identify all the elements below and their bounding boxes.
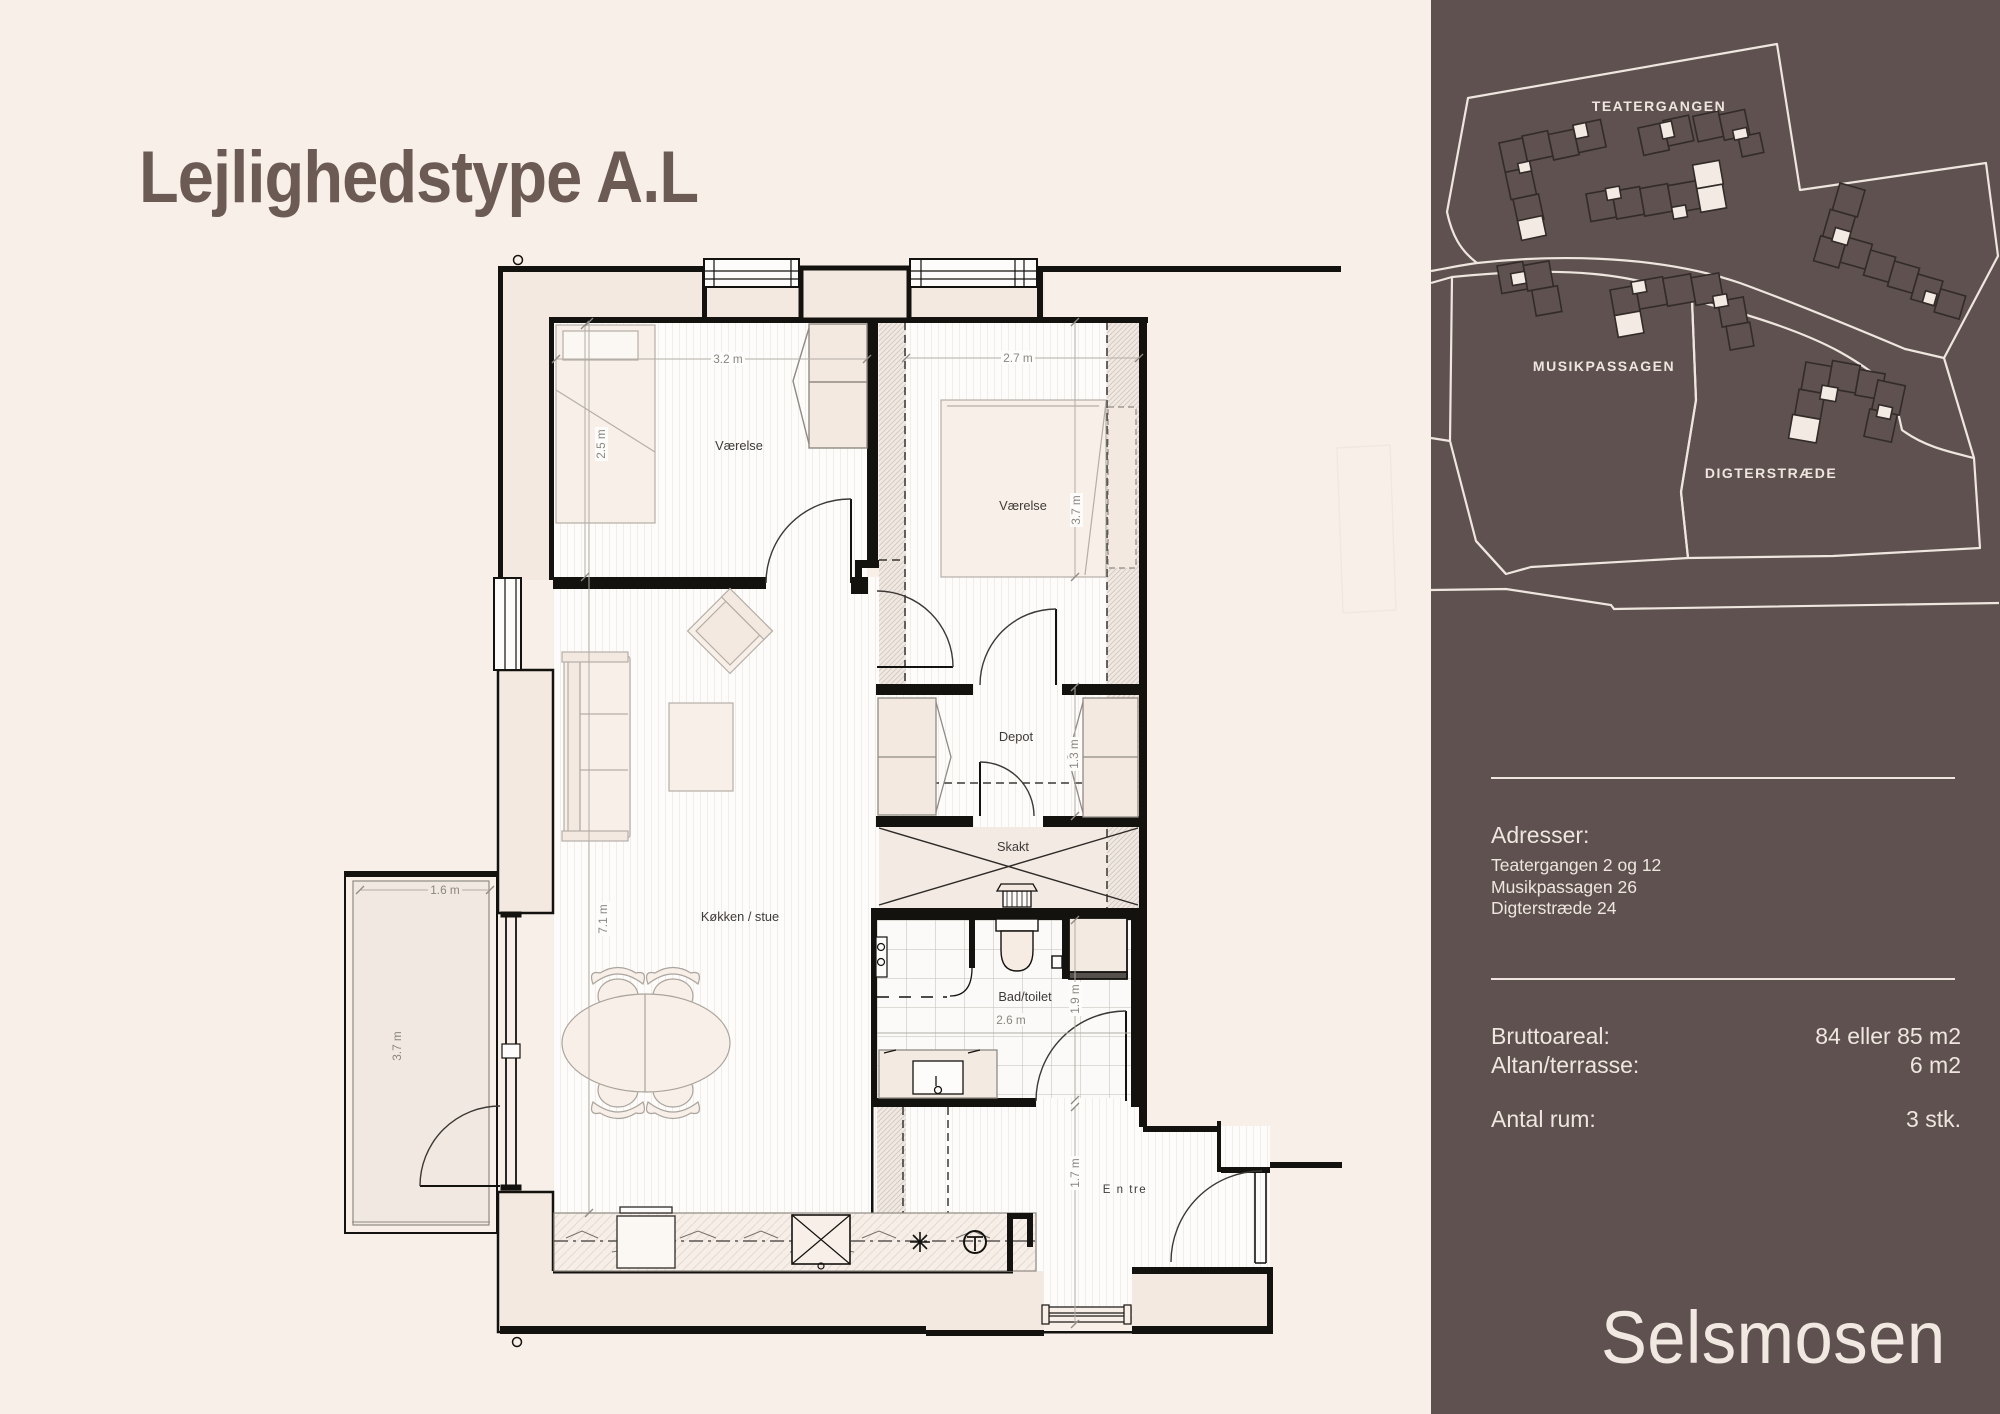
svg-text:1.7 m: 1.7 m <box>1068 1158 1082 1188</box>
svg-text:7.1 m: 7.1 m <box>596 904 610 934</box>
svg-text:3.7 m: 3.7 m <box>390 1031 404 1061</box>
svg-text:3.7 m: 3.7 m <box>1069 495 1083 525</box>
svg-text:3.2 m: 3.2 m <box>713 352 743 366</box>
svg-text:Skakt: Skakt <box>997 839 1029 854</box>
svg-text:Depot: Depot <box>999 729 1034 744</box>
svg-text:DIGTERSTRÆDE: DIGTERSTRÆDE <box>1705 465 1837 481</box>
svg-text:Bad/toilet: Bad/toilet <box>998 989 1052 1004</box>
svg-text:MUSIKPASSAGEN: MUSIKPASSAGEN <box>1533 358 1675 374</box>
svg-text:2.6 m: 2.6 m <box>996 1013 1026 1027</box>
svg-text:1.3 m: 1.3 m <box>1067 739 1081 769</box>
svg-text:Værelse: Værelse <box>999 498 1047 513</box>
svg-text:TEATERGANGEN: TEATERGANGEN <box>1592 98 1726 114</box>
svg-text:Værelse: Værelse <box>715 438 763 453</box>
svg-text:1.6 m: 1.6 m <box>430 883 460 897</box>
svg-text:2.5 m: 2.5 m <box>594 429 608 459</box>
svg-text:1.9 m: 1.9 m <box>1068 984 1082 1014</box>
svg-text:2.7 m: 2.7 m <box>1003 351 1033 365</box>
svg-text:E n tre: E n tre <box>1103 1184 1147 1196</box>
svg-text:Køkken / stue: Køkken / stue <box>701 909 779 924</box>
